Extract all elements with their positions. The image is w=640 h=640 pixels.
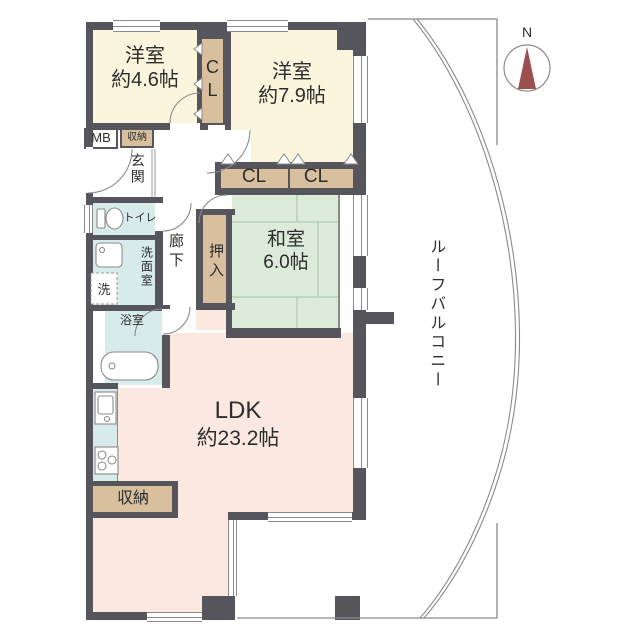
- kitchen-sink-icon: [95, 392, 116, 424]
- hallway-label: 廊下: [166, 233, 184, 271]
- room-name: LDK: [165, 397, 311, 426]
- toilet-icon: [97, 208, 123, 229]
- balcony-label: ルーフバルコニー: [426, 238, 445, 390]
- room-name: 洋室: [234, 60, 350, 84]
- room-name: 和室: [240, 229, 332, 252]
- door-arc-japanese: [199, 195, 227, 223]
- toilet-label: トイレ: [122, 212, 158, 225]
- stove-icon: [95, 447, 118, 474]
- washroom-label: 洗面室: [139, 246, 153, 288]
- closet-b-label: CL: [298, 166, 334, 189]
- oshiire-label: 押入: [206, 243, 224, 281]
- sliding-door-mark: [344, 154, 358, 164]
- sliding-door-mark: [194, 108, 202, 120]
- sliding-door-mark: [221, 154, 235, 164]
- meter-box-label: MB: [85, 130, 117, 146]
- entrance-step-line: [152, 149, 155, 197]
- sliding-door-mark: [194, 78, 202, 90]
- room-size: 約7.9帖: [234, 84, 350, 108]
- door-arc-western-small: [170, 93, 200, 123]
- closet-a-label: CL: [236, 166, 272, 189]
- compass-n-label: N: [517, 24, 537, 41]
- closet-letter: L: [202, 79, 223, 102]
- room-western-small-label: 洋室 約4.6帖: [95, 44, 195, 92]
- bathroom-label: 浴室: [116, 313, 148, 327]
- floor-plan: 洋室 約4.6帖 C L 洋室 約7.9帖 CL CL 和室 6.0帖 押入 廊…: [0, 0, 640, 640]
- washbasin-icon: [96, 243, 122, 267]
- door-arc-entrance: [88, 149, 132, 193]
- sliding-door-mark: [291, 154, 305, 164]
- storage-ldk-label: 収納: [110, 489, 156, 508]
- bathtub-icon: [101, 352, 158, 380]
- room-size: 約23.2帖: [165, 426, 311, 451]
- room-ldk-label: LDK 約23.2帖: [165, 397, 311, 451]
- room-western-large-label: 洋室 約7.9帖: [234, 60, 350, 108]
- entrance-label: 玄関: [129, 153, 146, 185]
- room-name: 洋室: [95, 44, 195, 68]
- room-japanese-label: 和室 6.0帖: [240, 229, 332, 275]
- room-size: 約4.6帖: [95, 68, 195, 92]
- door-arc-ldk: [163, 307, 190, 334]
- washer-label: 洗: [95, 282, 113, 298]
- closet-vertical-label: C L: [202, 56, 223, 101]
- sliding-door-mark: [277, 154, 291, 164]
- sliding-door-mark: [194, 43, 202, 55]
- balcony-boundary: [368, 19, 497, 145]
- closet-letter: C: [202, 56, 223, 79]
- door-arc-toilet: [163, 203, 191, 231]
- room-size: 6.0帖: [240, 252, 332, 275]
- storage-entrance-label: 収納: [121, 132, 153, 144]
